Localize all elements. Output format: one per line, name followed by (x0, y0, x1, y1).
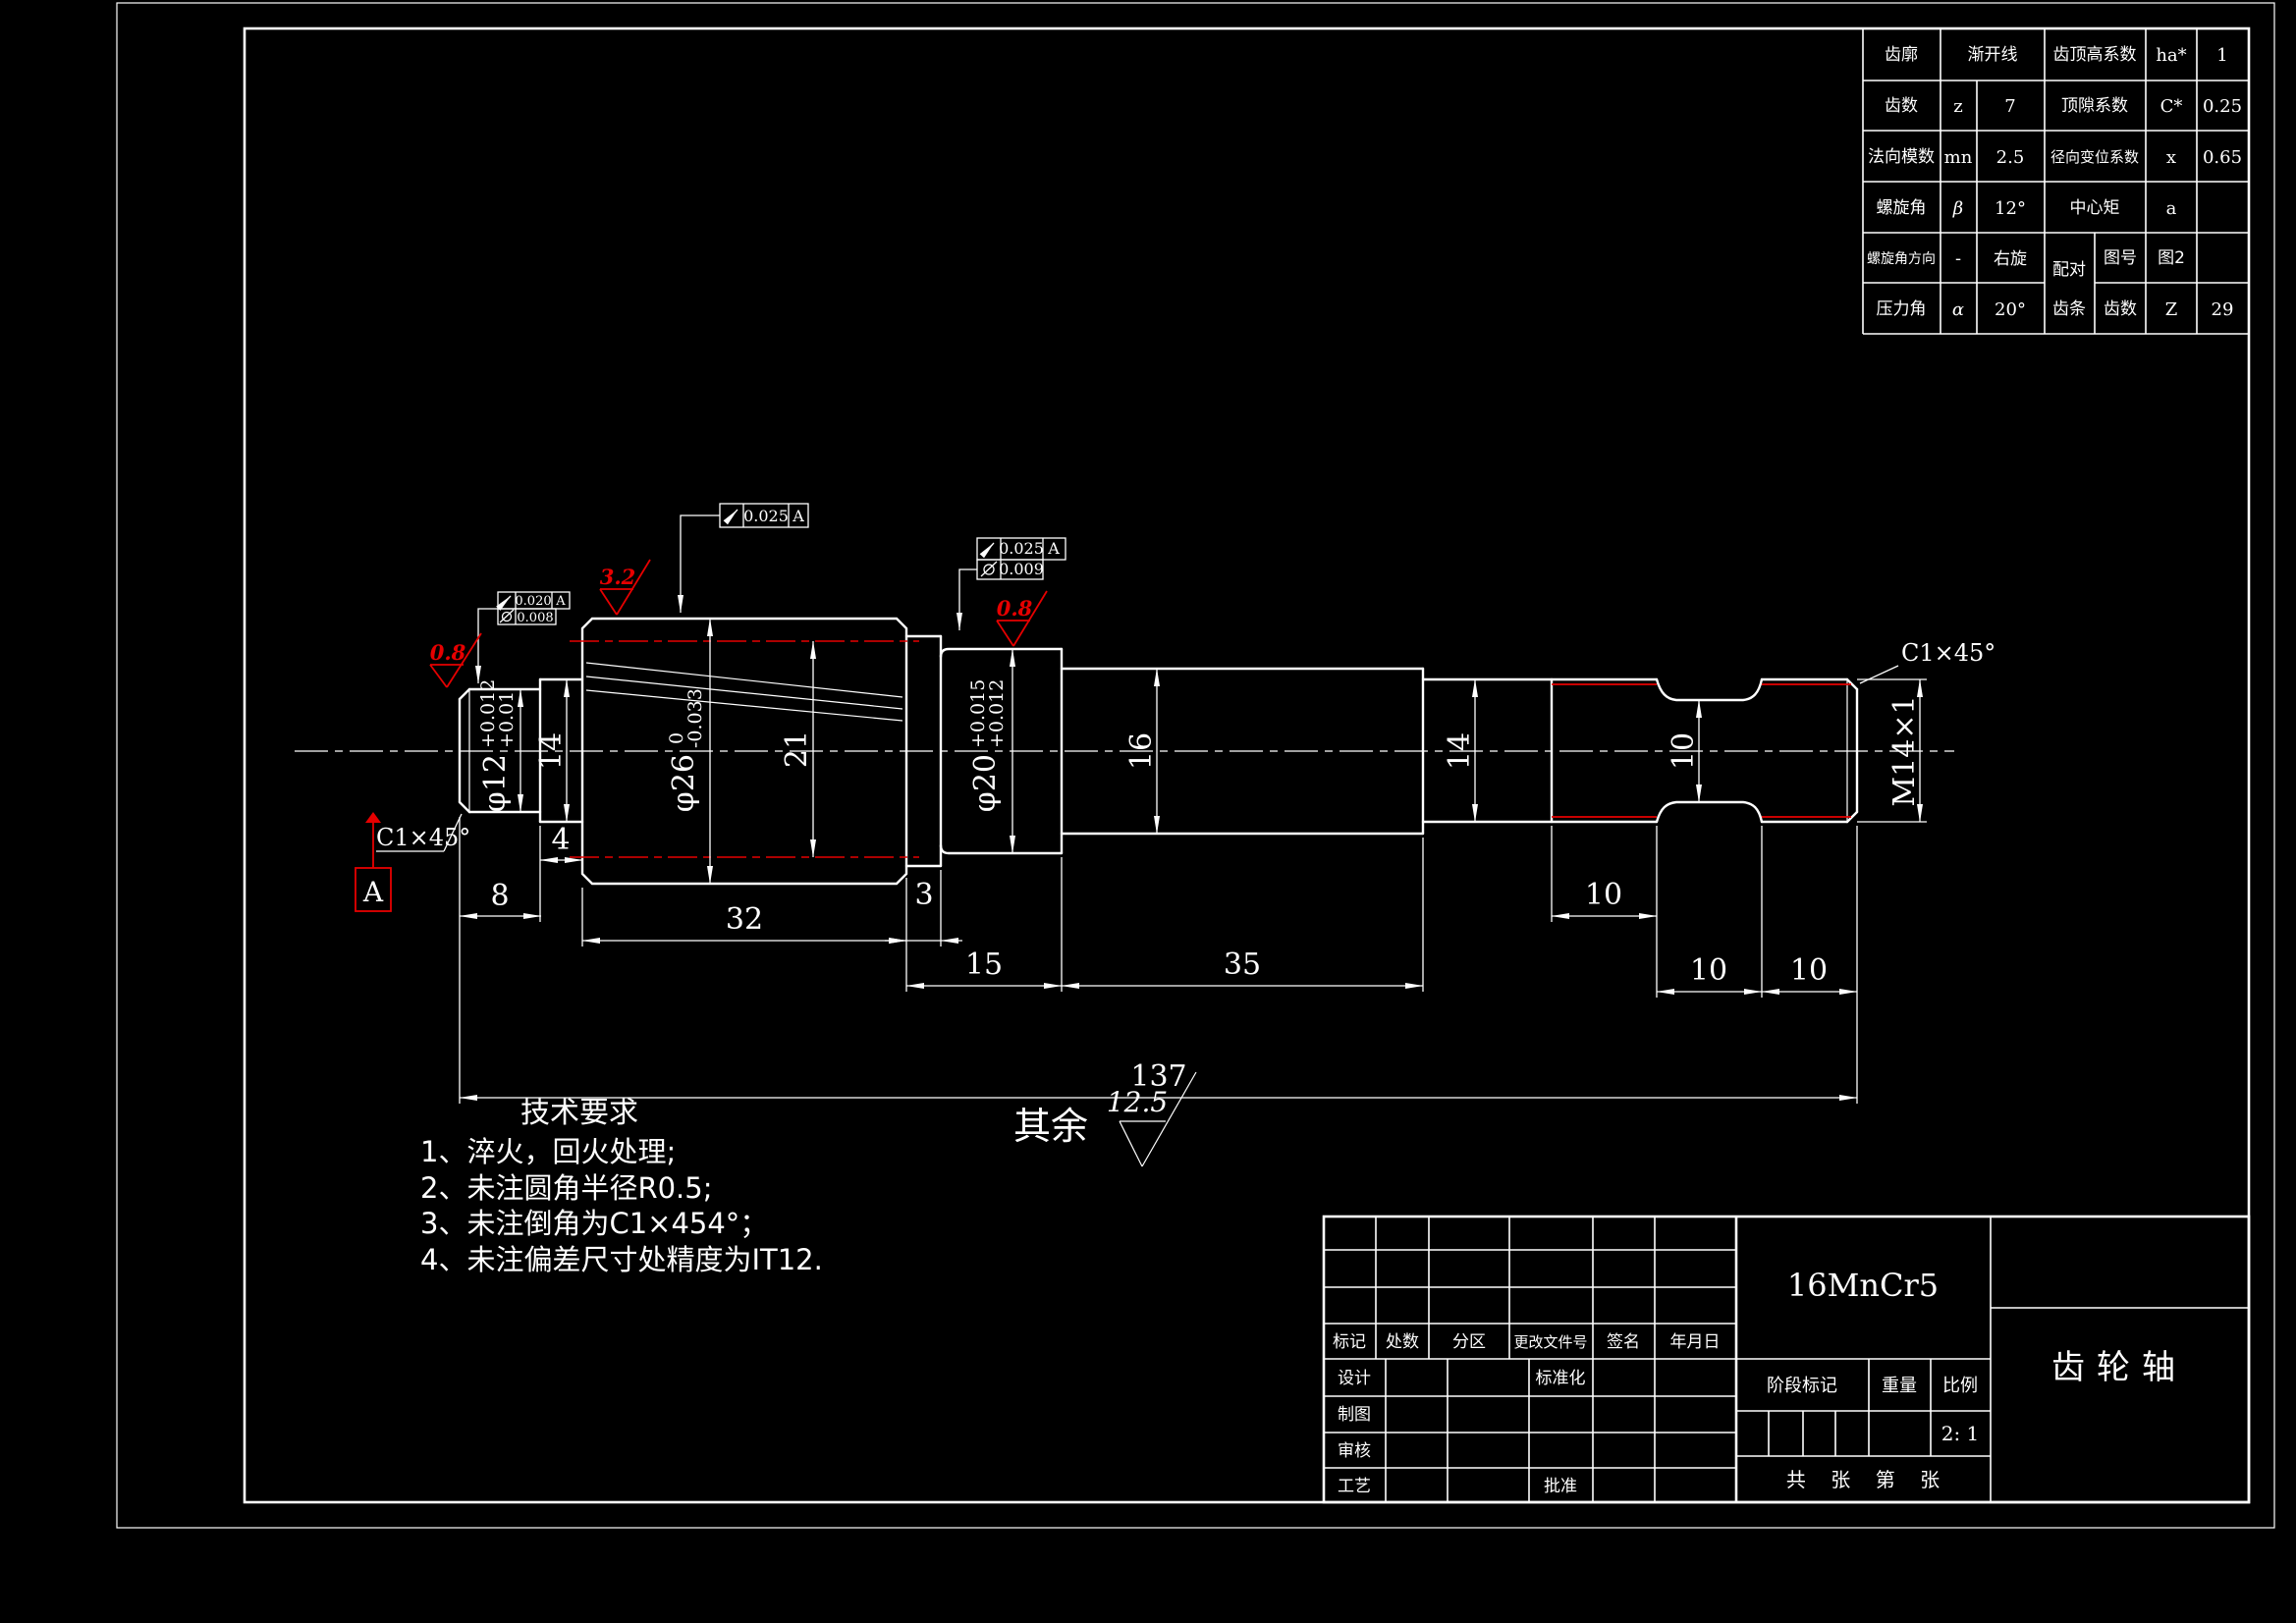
addendum-value: 1 (2216, 45, 2227, 66)
gtol-left-r2-value: 0.008 (517, 611, 553, 625)
tech-line-3: 3、未注倒角为C1×454°； (420, 1207, 768, 1240)
cylindricity-icon (981, 562, 997, 576)
mating-rack-label-line1: 配对 (2052, 260, 2086, 280)
tb-approve-label: 批准 (1544, 1477, 1577, 1496)
dim-14-right: 14 (1443, 732, 1477, 770)
roughness-mid-value: 0.8 (997, 596, 1033, 621)
datum-triangle-icon (365, 812, 381, 823)
dim-3: 3 (914, 878, 933, 912)
dim-32: 32 (726, 902, 763, 937)
addendum-label: 齿顶高系数 (2053, 45, 2137, 65)
gtol-top-datum: A (792, 507, 804, 525)
cylindricity-icon (500, 610, 514, 622)
helix-symbol: β (1952, 198, 1963, 219)
center-distance-symbol: a (2166, 198, 2177, 219)
datum-label: A (362, 876, 384, 908)
gtol-frame-left: 0.020 A 0.008 (478, 592, 570, 683)
dim-dia12-base: φ12 (478, 754, 513, 812)
dim-35: 35 (1224, 947, 1261, 982)
clearance-label: 顶隙系数 (2061, 96, 2128, 116)
gear-helix-line (586, 690, 902, 721)
rest-roughness-value: 12.5 (1107, 1086, 1168, 1118)
circular-runout-icon (726, 510, 738, 522)
profile-label: 齿廓 (1885, 45, 1918, 65)
gtol-left-r1-datum: A (555, 594, 566, 609)
dim-10-neck-dia: 10 (1667, 732, 1701, 770)
pressure-angle-label: 压力角 (1877, 299, 1927, 319)
module-value: 2.5 (1996, 147, 2025, 168)
tech-line-4: 4、未注偏差尺寸处精度为IT12. (420, 1243, 823, 1276)
pressure-angle-value: 20° (1995, 299, 2026, 320)
dim-15: 15 (965, 947, 1003, 982)
title-block: 标记 处数 分区 更改文件号 签名 年月日 设计 制图 审核 工艺 标准化 批准… (1324, 1217, 2249, 1502)
circular-runout-icon (983, 543, 994, 555)
cad-drawing-sheet: 齿廓 渐开线 齿顶高系数 ha* 1 齿数 z 7 顶隙系数 C* 0.25 法… (0, 0, 2296, 1623)
mating-rack-label-line2: 齿条 (2052, 299, 2086, 319)
pressure-angle-symbol: α (1952, 299, 1964, 320)
clearance-value: 0.25 (2203, 96, 2242, 117)
circular-runout-icon (502, 596, 511, 605)
dim-dia26-lower: -0.033 (684, 688, 706, 748)
teeth-label: 齿数 (1885, 96, 1918, 116)
tb-scale-label: 比例 (1942, 1376, 1978, 1396)
helix-dir-value: 右旋 (1994, 249, 2027, 269)
dim-10-spline: 10 (1585, 878, 1622, 912)
gtol-left-leader (478, 609, 498, 683)
gtol-top-value: 0.025 (743, 507, 789, 525)
tech-line-1: 1、淬火，回火处理; (420, 1135, 676, 1168)
dim-dia20: φ20 +0.015 +0.012 (967, 679, 1008, 813)
tb-sign-label: 签名 (1607, 1332, 1640, 1352)
gtol-mid-r2-value: 0.009 (999, 560, 1044, 578)
gear-helix-line (586, 663, 902, 697)
tb-weight-label: 重量 (1882, 1376, 1917, 1396)
dim-dia12: φ12 +0.012 +0.01 (477, 679, 518, 813)
horizontal-dimensions: 8 4 32 3 15 35 10 10 10 137 (460, 823, 1857, 1098)
dim-thread-m14: M14×1 (1887, 695, 1922, 806)
technical-requirements: 技术要求 1、淬火，回火处理; 2、未注圆角半径R0.5; 3、未注倒角为C1×… (420, 1096, 823, 1276)
chamfer-callout-right: C1×45° (1860, 639, 1995, 683)
dim-dia20-lower: +0.012 (986, 679, 1008, 748)
tech-line-2: 2、未注圆角半径R0.5; (420, 1171, 713, 1205)
tb-date-label: 年月日 (1670, 1332, 1721, 1352)
gtol-mid-r1-value: 0.025 (999, 539, 1044, 558)
center-distance-label: 中心矩 (2070, 198, 2120, 218)
dim-dia26: φ26 0 -0.033 (666, 688, 706, 812)
rest-roughness-label: 其余 (1013, 1105, 1088, 1148)
dim-10-thread: 10 (1790, 953, 1828, 988)
sheet-borders (117, 3, 2274, 1528)
mate-teeth-value: 29 (2212, 299, 2234, 320)
dim-dia12-lower: +0.01 (496, 691, 518, 748)
tb-scale-value: 2: 1 (1941, 1422, 1980, 1445)
figure-no-label: 图号 (2104, 248, 2137, 268)
tb-sheet-info: 共 张 第 张 (1786, 1468, 1940, 1491)
gtol-frame-top: 0.025 A (681, 504, 808, 613)
dim-dia26-base: φ26 (667, 754, 701, 812)
profile-value: 渐开线 (1968, 45, 2018, 65)
module-label: 法向模数 (1868, 147, 1935, 167)
dim-4: 4 (551, 823, 570, 857)
figure-no-value: 图2 (2158, 248, 2185, 268)
module-symbol: mn (1944, 147, 1973, 168)
roughness-gear-value: 3.2 (600, 565, 636, 589)
tb-check-label: 审核 (1338, 1441, 1371, 1461)
chamfer-left-label: C1×45° (376, 824, 470, 851)
helix-dir-symbol: - (1955, 248, 1961, 269)
roughness-mark-mid: 0.8 (997, 591, 1047, 646)
dim-16: 16 (1124, 732, 1159, 770)
dim-14-left: 14 (534, 732, 569, 770)
tb-standard-label: 标准化 (1536, 1369, 1586, 1388)
gear-helix-line (586, 676, 902, 709)
gtol-left-r1-value: 0.020 (515, 594, 551, 609)
outer-border (117, 3, 2274, 1528)
roughness-mark-gear: 3.2 (600, 560, 650, 615)
gtol-mid-leader (959, 569, 977, 630)
tb-zone-label: 分区 (1452, 1332, 1486, 1352)
chamfer-right-label: C1×45° (1901, 639, 1995, 667)
helix-dir-label: 螺旋角方向 (1867, 251, 1936, 267)
shift-label: 径向变位系数 (2050, 148, 2139, 166)
chamfer-callout-left: C1×45° (376, 814, 470, 851)
gtol-top-leader (681, 515, 720, 613)
tb-draft-label: 制图 (1338, 1405, 1371, 1425)
helix-value: 12° (1995, 198, 2026, 219)
teeth-value: 7 (2004, 96, 2015, 117)
gear-parameter-table: 齿廓 渐开线 齿顶高系数 ha* 1 齿数 z 7 顶隙系数 C* 0.25 法… (1863, 28, 2249, 334)
tb-part-name: 齿轮轴 (2051, 1348, 2187, 1387)
roughness-mark-left: 0.8 (430, 633, 481, 687)
clearance-symbol: C* (2160, 96, 2183, 117)
dim-21: 21 (780, 730, 814, 768)
addendum-symbol: ha* (2156, 45, 2186, 66)
tb-docno-label: 更改文件号 (1513, 1333, 1587, 1351)
red-reference-lines (570, 641, 1851, 857)
roughness-left-value: 0.8 (430, 640, 466, 665)
tb-material: 16MnCr5 (1787, 1267, 1939, 1304)
shift-value: 0.65 (2203, 147, 2242, 168)
shift-symbol: x (2166, 147, 2176, 168)
dim-10-neck: 10 (1690, 953, 1727, 988)
mate-teeth-label: 齿数 (2104, 299, 2137, 319)
tb-stage-label: 阶段标记 (1767, 1376, 1837, 1396)
gtol-mid-r1-datum: A (1047, 539, 1060, 558)
tb-design-label: 设计 (1338, 1369, 1371, 1388)
tech-title: 技术要求 (520, 1096, 638, 1130)
mate-teeth-symbol: Z (2165, 299, 2178, 320)
teeth-symbol: z (1953, 96, 1962, 117)
dim-dia20-base: φ20 (968, 754, 1003, 812)
tb-mark-label: 标记 (1333, 1332, 1366, 1352)
dim-8: 8 (490, 879, 509, 913)
tb-count-label: 处数 (1386, 1332, 1419, 1352)
tb-process-label: 工艺 (1338, 1477, 1371, 1496)
helix-label: 螺旋角 (1877, 198, 1927, 218)
